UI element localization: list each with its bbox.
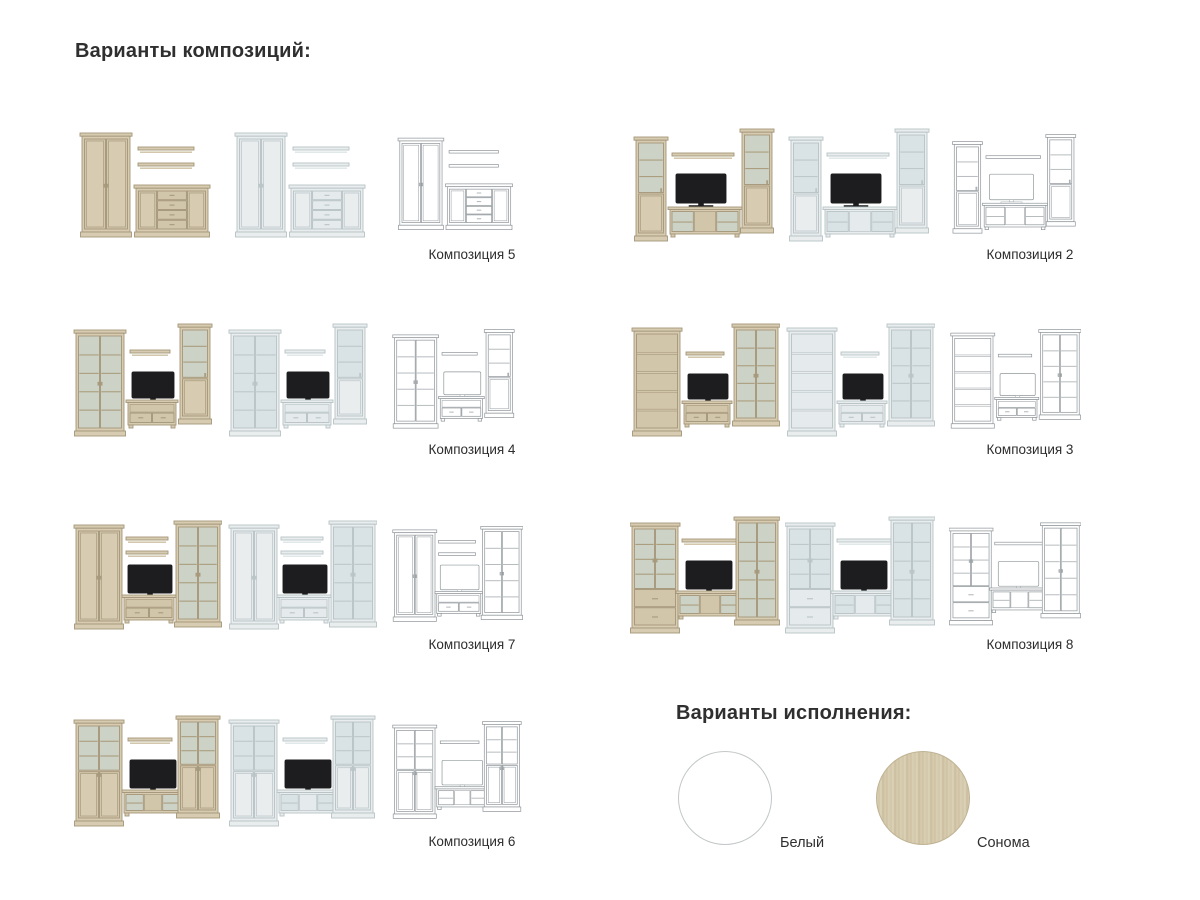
furniture-image-white-composition-7 — [227, 507, 377, 642]
composition-label-composition-7: Композиция 7 — [392, 637, 552, 652]
composition-block-composition-8: Композиция 8 — [630, 495, 1090, 690]
finishes-title: Варианты исполнения: — [676, 702, 912, 725]
composition-label-composition-4: Композиция 4 — [392, 442, 552, 457]
white-finish-label: Белый — [780, 835, 824, 851]
composition-block-composition-7: Композиция 7 — [72, 495, 532, 690]
furniture-image-wireframe-composition-8 — [949, 514, 1081, 633]
composition-label-composition-8: Композиция 8 — [950, 637, 1110, 652]
composition-block-composition-3: Композиция 3 — [630, 300, 1090, 495]
composition-label-composition-3: Композиция 3 — [950, 442, 1110, 457]
furniture-image-sonoma-composition-3 — [630, 312, 780, 447]
sonoma-finish-swatch — [876, 751, 970, 845]
furniture-image-white-composition-4 — [227, 312, 377, 447]
furniture-image-sonoma-composition-4 — [72, 312, 222, 447]
furniture-image-white-composition-2 — [785, 117, 935, 252]
furniture-image-wireframe-composition-5 — [391, 124, 523, 243]
furniture-image-wireframe-composition-6 — [391, 711, 523, 830]
composition-block-composition-2: Композиция 2 — [630, 105, 1090, 300]
furniture-image-wireframe-composition-7 — [391, 514, 523, 633]
furniture-image-white-composition-8 — [785, 507, 935, 642]
furniture-image-white-composition-6 — [227, 704, 377, 839]
composition-block-composition-5: Композиция 5 — [72, 105, 532, 300]
furniture-image-sonoma-composition-5 — [72, 117, 222, 252]
furniture-image-wireframe-composition-3 — [949, 319, 1081, 438]
composition-label-composition-2: Композиция 2 — [950, 247, 1110, 262]
furniture-image-sonoma-composition-7 — [72, 507, 222, 642]
furniture-image-sonoma-composition-2 — [630, 117, 780, 252]
compositions-title: Варианты композиций: — [75, 40, 311, 63]
white-finish-swatch — [678, 751, 772, 845]
composition-label-composition-6: Композиция 6 — [392, 834, 552, 849]
furniture-image-wireframe-composition-2 — [949, 124, 1081, 243]
composition-block-composition-4: Композиция 4 — [72, 300, 532, 495]
finishes-section: Варианты исполнения: Белый Сонома — [630, 692, 1100, 887]
sonoma-finish-label: Сонома — [977, 835, 1030, 851]
furniture-image-wireframe-composition-4 — [391, 319, 523, 438]
furniture-image-white-composition-5 — [227, 117, 377, 252]
furniture-image-white-composition-3 — [785, 312, 935, 447]
furniture-image-sonoma-composition-8 — [630, 507, 780, 642]
composition-label-composition-5: Композиция 5 — [392, 247, 552, 262]
composition-block-composition-6: Композиция 6 — [72, 692, 532, 887]
furniture-image-sonoma-composition-6 — [72, 704, 222, 839]
